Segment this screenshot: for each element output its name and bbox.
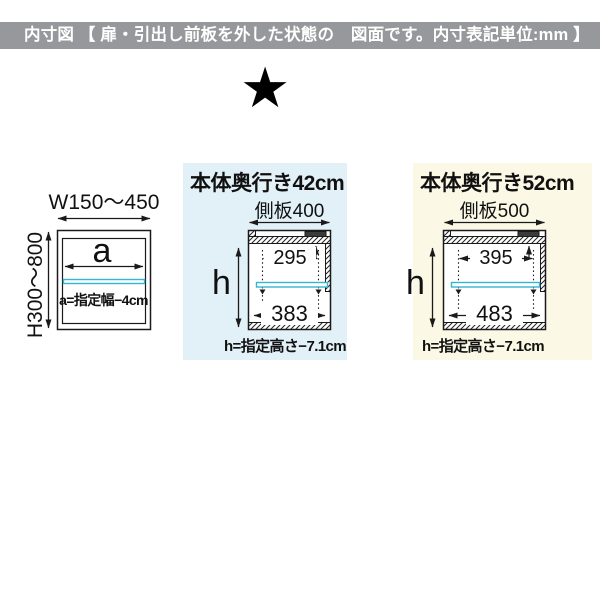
depth42-top-board: [249, 237, 331, 244]
depth52-title: 本体奥行き52cm: [420, 167, 574, 197]
depth42-lower-dim: 383: [261, 303, 318, 325]
front-height-range-label: H300〜800: [19, 225, 49, 345]
depth52-lower-dim: 483: [466, 303, 523, 325]
depth52-height-note: h=指定高さ−7.1cm: [404, 335, 562, 356]
depth42-title: 本体奥行き42cm: [190, 167, 344, 197]
depth52-sidepanel-label: 側板500: [432, 196, 557, 223]
header-bar: 内寸図 【 扉・引出し前板を外した状態の 図面です。内寸表記単位:mm 】: [0, 22, 600, 49]
page: 内寸図 【 扉・引出し前板を外した状態の 図面です。内寸表記単位:mm 】 ★: [0, 0, 600, 600]
depth52-top-board: [444, 237, 546, 244]
depth42-height-var: h: [212, 266, 231, 300]
depth52-shelf-bar: [452, 283, 540, 288]
depth42-upper-dim: 295: [264, 247, 316, 269]
front-width-range-label: W150〜450: [44, 186, 164, 216]
star-icon: ★: [240, 60, 290, 116]
depth52-corner-section: [444, 231, 451, 237]
depth42-corner-section: [249, 231, 256, 237]
depth42-shelf-bar: [257, 283, 328, 288]
depth52-upper-dim: 395: [470, 247, 522, 269]
depth42-hanger-bracket: [305, 232, 326, 237]
header-title: 内寸図 【 扉・引出し前板を外した状態の 図面です。内寸表記単位:mm 】: [0, 22, 600, 49]
front-shelf-bar: [64, 280, 145, 284]
front-inner-width-var: a: [57, 234, 147, 268]
depth52-height-var: h: [406, 266, 425, 300]
front-inner-width-note: a=指定幅−4cm: [56, 290, 151, 310]
depth42-sidepanel-label: 側板400: [237, 196, 342, 223]
depth42-height-note: h=指定高さ−7.1cm: [206, 335, 364, 356]
depth52-back-rail: [541, 244, 546, 292]
depth52-hanger-bracket: [518, 232, 539, 237]
